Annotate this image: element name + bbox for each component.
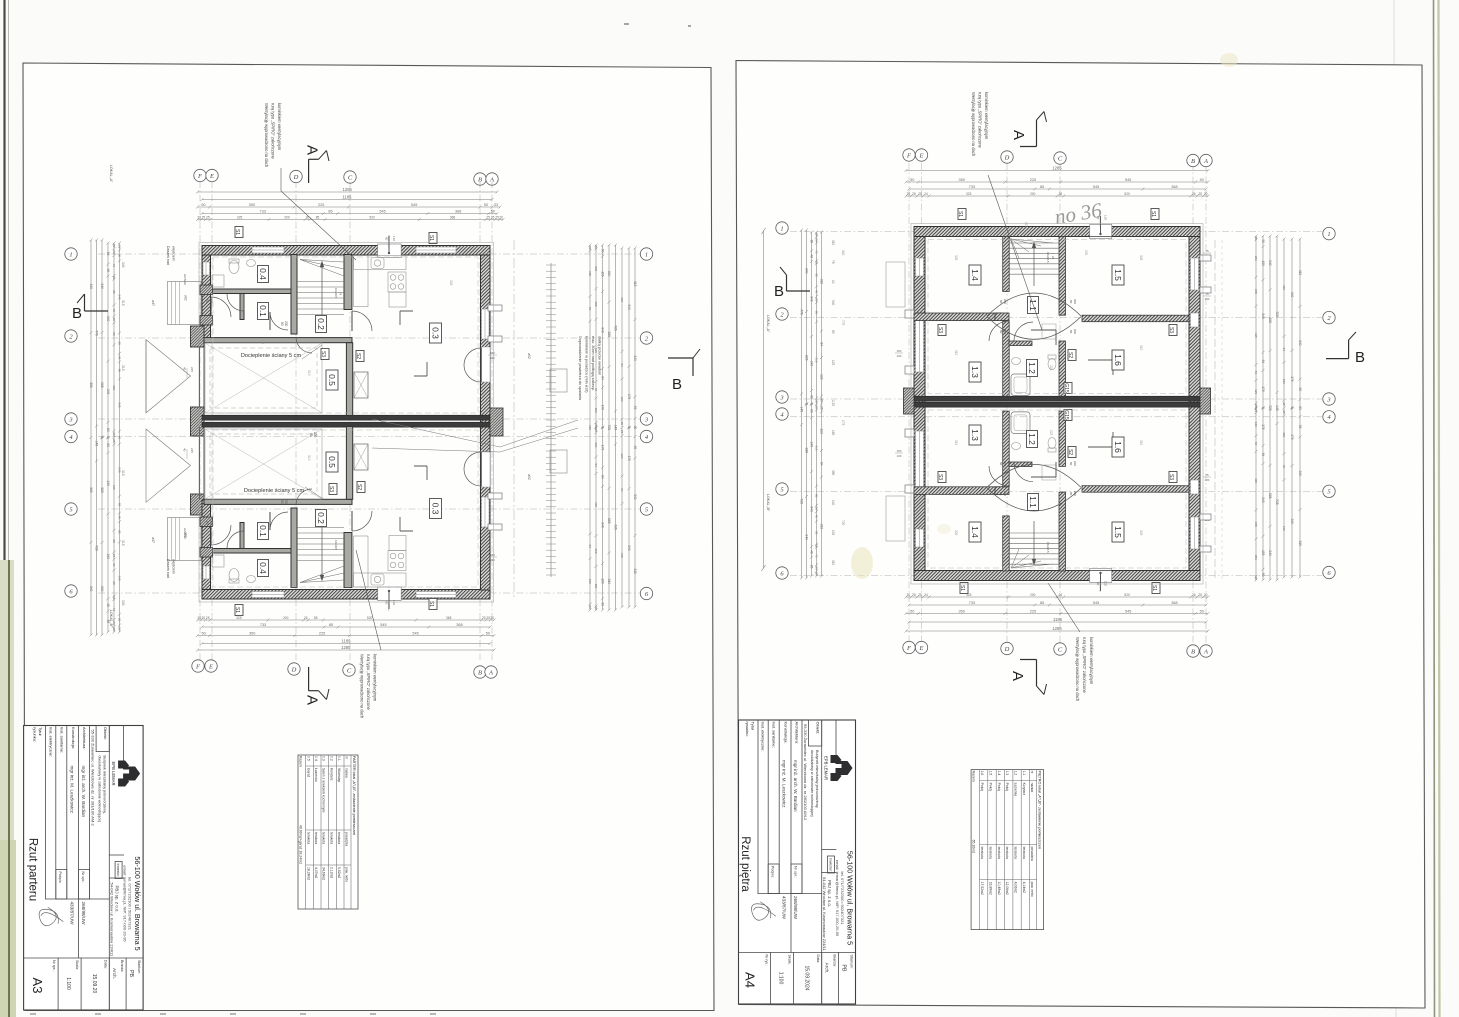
svg-text:85: 85 bbox=[810, 240, 814, 244]
svg-text:pow. netto: pow. netto bbox=[345, 867, 349, 882]
svg-text:733: 733 bbox=[969, 601, 975, 605]
svg-text:340: 340 bbox=[106, 316, 110, 322]
svg-text:25: 25 bbox=[206, 215, 210, 219]
svg-text:340: 340 bbox=[601, 327, 605, 333]
svg-text:315: 315 bbox=[1139, 345, 1143, 351]
svg-text:rysunku:: rysunku: bbox=[33, 727, 38, 742]
svg-text:175: 175 bbox=[627, 456, 631, 462]
svg-text:25: 25 bbox=[912, 593, 916, 597]
svg-text:25: 25 bbox=[815, 405, 819, 409]
svg-text:225: 225 bbox=[190, 448, 194, 453]
svg-text:50: 50 bbox=[118, 618, 122, 622]
svg-text:775: 775 bbox=[95, 330, 99, 336]
svg-text:siatką przeciw owadom: siatką przeciw owadom bbox=[598, 336, 602, 375]
svg-text:S1: S1 bbox=[428, 235, 434, 241]
svg-text:268/98/UW: 268/98/UW bbox=[81, 902, 86, 926]
svg-text:155: 155 bbox=[588, 579, 592, 584]
svg-text:130: 130 bbox=[392, 236, 396, 241]
svg-text:Garaż: Garaż bbox=[306, 768, 310, 778]
svg-text:50: 50 bbox=[484, 203, 488, 207]
svg-text:200: 200 bbox=[1073, 491, 1077, 496]
svg-text:PB: PB bbox=[841, 965, 847, 972]
svg-text:80: 80 bbox=[815, 311, 819, 315]
svg-text:165: 165 bbox=[831, 430, 835, 436]
svg-text:mgr inż. arch. W. Bardian: mgr inż. arch. W. Bardian bbox=[81, 766, 86, 818]
svg-text:130: 130 bbox=[1104, 215, 1108, 220]
svg-text:50: 50 bbox=[201, 203, 205, 207]
svg-text:Daszek nad: Daszek nad bbox=[166, 246, 170, 265]
svg-text:Razem: Razem bbox=[299, 756, 303, 767]
svg-text:80: 80 bbox=[280, 500, 284, 504]
svg-text:725: 725 bbox=[607, 425, 611, 431]
svg-text:Skala:: Skala: bbox=[75, 960, 79, 970]
svg-text:80: 80 bbox=[1069, 330, 1073, 334]
svg-text:24: 24 bbox=[1051, 256, 1055, 260]
svg-text:25: 25 bbox=[620, 422, 624, 426]
svg-text:Wiatrołap: Wiatrołap bbox=[337, 768, 341, 782]
svg-text:1: 1 bbox=[69, 251, 72, 258]
svg-text:433/87/UW: 433/87/UW bbox=[69, 902, 74, 926]
svg-text:kominkiem wentylacyjnym: kominkiem wentylacyjnym bbox=[277, 103, 282, 151]
svg-text:4,14m2: 4,14m2 bbox=[1022, 882, 1026, 893]
svg-text:0.2: 0.2 bbox=[316, 512, 326, 524]
svg-text:315: 315 bbox=[1282, 526, 1286, 531]
svg-text:Konstrukcja:: Konstrukcja: bbox=[71, 727, 76, 749]
svg-text:E: E bbox=[209, 173, 214, 180]
svg-text:50: 50 bbox=[486, 631, 490, 635]
svg-text:terakota: terakota bbox=[1005, 847, 1009, 859]
svg-text:20: 20 bbox=[1204, 192, 1208, 196]
svg-text:26: 26 bbox=[815, 507, 819, 511]
svg-text:385: 385 bbox=[805, 355, 809, 361]
svg-text:1.5: 1.5 bbox=[988, 771, 992, 776]
svg-text:245: 245 bbox=[106, 481, 110, 487]
svg-text:200: 200 bbox=[1030, 192, 1036, 196]
svg-text:1.1: 1.1 bbox=[1028, 496, 1038, 508]
svg-text:540: 540 bbox=[831, 300, 835, 306]
svg-text:26: 26 bbox=[112, 554, 116, 558]
svg-text:95: 95 bbox=[112, 290, 116, 294]
svg-text:315: 315 bbox=[1282, 285, 1286, 290]
svg-text:Razem: Razem bbox=[972, 771, 976, 782]
svg-text:75: 75 bbox=[1205, 473, 1209, 477]
svg-text:50: 50 bbox=[910, 609, 914, 613]
svg-text:20: 20 bbox=[112, 628, 116, 632]
svg-text:B: B bbox=[774, 283, 784, 300]
svg-text:80: 80 bbox=[309, 433, 313, 437]
svg-text:25: 25 bbox=[1198, 192, 1202, 196]
svg-text:Architektura:: Architektura: bbox=[795, 722, 800, 744]
svg-text:200: 200 bbox=[1003, 299, 1007, 304]
svg-text:385: 385 bbox=[89, 487, 93, 493]
svg-text:terakota: terakota bbox=[314, 832, 318, 844]
svg-text:80: 80 bbox=[385, 601, 389, 605]
svg-text:2: 2 bbox=[810, 403, 814, 405]
svg-text:A: A bbox=[1009, 671, 1026, 681]
svg-text:16x18,5: 16x18,5 bbox=[334, 288, 338, 298]
svg-text:20: 20 bbox=[490, 616, 494, 620]
svg-text:1.1: 1.1 bbox=[1022, 771, 1026, 776]
svg-text:Architektura:: Architektura: bbox=[82, 727, 87, 749]
svg-text:105: 105 bbox=[831, 530, 835, 536]
svg-text:145: 145 bbox=[95, 441, 99, 447]
svg-text:S1: S1 bbox=[234, 607, 240, 613]
svg-text:340: 340 bbox=[805, 534, 809, 540]
svg-text:Inst. sanitarne:: Inst. sanitarne: bbox=[772, 722, 777, 748]
svg-text:25: 25 bbox=[202, 616, 206, 620]
svg-text:0.5: 0.5 bbox=[306, 756, 310, 761]
svg-text:Arch.: Arch. bbox=[825, 963, 830, 974]
svg-text:130: 130 bbox=[1104, 581, 1108, 586]
svg-text:24: 24 bbox=[831, 280, 835, 284]
svg-text:1.1: 1.1 bbox=[1028, 299, 1038, 311]
svg-text:733: 733 bbox=[260, 623, 266, 627]
svg-text:200: 200 bbox=[284, 321, 288, 327]
svg-text:225: 225 bbox=[319, 631, 325, 635]
svg-text:Podpis:: Podpis: bbox=[771, 866, 775, 878]
svg-text:20: 20 bbox=[594, 606, 598, 610]
svg-text:340: 340 bbox=[627, 304, 631, 310]
svg-text:25: 25 bbox=[1254, 409, 1258, 413]
svg-text:24: 24 bbox=[339, 292, 343, 296]
svg-text:1.3: 1.3 bbox=[1005, 771, 1009, 776]
svg-text:mgr inż. arch. W. Bardian: mgr inż. arch. W. Bardian bbox=[793, 760, 798, 812]
svg-text:1: 1 bbox=[645, 251, 648, 258]
svg-text:1.6: 1.6 bbox=[980, 771, 984, 776]
svg-text:Wentylację wyprowadzono na dac: Wentylację wyprowadzono na dach bbox=[1075, 637, 1080, 702]
svg-text:245: 245 bbox=[810, 442, 814, 448]
svg-text:kominkiem wentylacyjnym: kominkiem wentylacyjnym bbox=[373, 654, 378, 702]
svg-text:2x15/30: 2x15/30 bbox=[183, 274, 187, 285]
svg-text:80: 80 bbox=[280, 322, 284, 326]
svg-text:25: 25 bbox=[202, 215, 206, 219]
svg-text:wejściem: wejściem bbox=[172, 246, 176, 261]
svg-text:Obiekt:: Obiekt: bbox=[816, 722, 821, 735]
svg-text:200: 200 bbox=[1030, 593, 1036, 597]
svg-text:315: 315 bbox=[815, 358, 819, 363]
svg-text:315: 315 bbox=[954, 350, 958, 356]
svg-text:315: 315 bbox=[831, 560, 835, 566]
svg-text:25: 25 bbox=[486, 215, 490, 219]
svg-text:725: 725 bbox=[614, 524, 618, 530]
svg-text:385: 385 bbox=[831, 470, 835, 476]
svg-text:G15: G15 bbox=[1063, 383, 1069, 393]
svg-text:200: 200 bbox=[283, 616, 289, 620]
svg-text:545: 545 bbox=[380, 623, 386, 627]
svg-text:73: 73 bbox=[815, 250, 819, 254]
svg-text:16,89m2: 16,89m2 bbox=[988, 882, 992, 895]
svg-text:310: 310 bbox=[307, 370, 311, 376]
svg-text:80: 80 bbox=[999, 462, 1003, 466]
svg-text:Stadium:: Stadium: bbox=[137, 960, 141, 974]
svg-text:175: 175 bbox=[1261, 386, 1265, 392]
svg-text:Obiekt:: Obiekt: bbox=[103, 727, 108, 740]
svg-text:4,07m2: 4,07m2 bbox=[314, 867, 318, 878]
svg-text:B: B bbox=[1191, 648, 1195, 655]
svg-text:130: 130 bbox=[897, 354, 902, 358]
svg-text:200: 200 bbox=[313, 432, 317, 438]
svg-text:95: 95 bbox=[118, 530, 122, 534]
svg-text:84: 84 bbox=[620, 488, 624, 492]
svg-text:A: A bbox=[304, 145, 321, 155]
svg-text:80: 80 bbox=[118, 503, 122, 507]
svg-text:17,52m2: 17,52m2 bbox=[980, 882, 984, 895]
svg-text:Inwestor:: Inwestor: bbox=[116, 864, 120, 878]
svg-text:315: 315 bbox=[121, 470, 125, 476]
svg-text:Docieplenie ściany 5 cm: Docieplenie ściany 5 cm bbox=[241, 353, 302, 359]
svg-text:0.4: 0.4 bbox=[258, 562, 268, 574]
svg-text:90: 90 bbox=[205, 299, 209, 303]
svg-text:0.4: 0.4 bbox=[258, 268, 268, 280]
svg-text:25: 25 bbox=[918, 593, 922, 597]
svg-text:1: 1 bbox=[1327, 231, 1330, 238]
svg-text:200: 200 bbox=[1073, 329, 1077, 334]
svg-text:545: 545 bbox=[1093, 601, 1099, 605]
svg-text:2,25: 2,25 bbox=[831, 400, 835, 406]
svg-text:140: 140 bbox=[831, 500, 835, 506]
svg-text:145: 145 bbox=[800, 406, 804, 412]
svg-text:368: 368 bbox=[456, 623, 462, 627]
svg-text:55-330 Żurawiniec ul. Wierzbow: 55-330 Żurawiniec ul. Wierzbowa dz. nr 2… bbox=[91, 730, 96, 827]
svg-text:84: 84 bbox=[1254, 371, 1258, 375]
svg-text:54-042 Wrocław ul. Kosmonautów: 54-042 Wrocław ul. Kosmonautów 224/11 bbox=[110, 883, 115, 957]
svg-text:1: 1 bbox=[780, 225, 783, 232]
svg-text:315: 315 bbox=[1298, 270, 1302, 276]
svg-text:26: 26 bbox=[304, 616, 308, 620]
svg-text:80: 80 bbox=[1069, 462, 1073, 466]
svg-text:315: 315 bbox=[633, 281, 637, 287]
svg-text:520: 520 bbox=[1124, 593, 1130, 597]
svg-text:B: B bbox=[478, 669, 482, 676]
svg-text:84: 84 bbox=[1254, 442, 1258, 446]
svg-text:0.3: 0.3 bbox=[431, 327, 441, 339]
svg-text:Pokój: Pokój bbox=[1005, 783, 1009, 792]
svg-text:84: 84 bbox=[588, 307, 592, 311]
svg-text:1.3: 1.3 bbox=[970, 366, 980, 378]
svg-text:155: 155 bbox=[1261, 550, 1265, 556]
svg-text:80: 80 bbox=[112, 332, 116, 336]
svg-text:25: 25 bbox=[594, 429, 598, 433]
svg-text:LOKAL „A”: LOKAL „A” bbox=[766, 315, 770, 333]
svg-text:56-100 Wołów ul. Browarna 5: 56-100 Wołów ul. Browarna 5 bbox=[846, 851, 855, 945]
svg-text:328: 328 bbox=[1139, 255, 1143, 261]
svg-text:Wentylację wyprowadzono na dac: Wentylację wyprowadzono na dach bbox=[971, 92, 976, 157]
svg-text:kominkiem w posadzce (min ø16): kominkiem w posadzce (min ø16) bbox=[585, 336, 589, 393]
svg-text:D: D bbox=[291, 666, 297, 673]
svg-text:20: 20 bbox=[1254, 236, 1258, 240]
svg-text:545: 545 bbox=[1125, 609, 1131, 613]
svg-text:60: 60 bbox=[810, 395, 814, 399]
svg-text:95: 95 bbox=[633, 446, 637, 450]
svg-text:84: 84 bbox=[594, 464, 598, 468]
svg-text:123: 123 bbox=[1282, 379, 1286, 384]
svg-text:222: 222 bbox=[1024, 222, 1028, 228]
svg-text:385: 385 bbox=[1268, 493, 1272, 499]
svg-text:D: D bbox=[1004, 154, 1010, 161]
svg-text:0.5: 0.5 bbox=[327, 374, 337, 386]
svg-text:Tytuł: Tytuł bbox=[38, 727, 43, 736]
svg-text:mgr inż. M. Leszkowicz: mgr inż. M. Leszkowicz bbox=[69, 766, 74, 814]
svg-text:ø47: ø47 bbox=[151, 300, 155, 306]
svg-text:125: 125 bbox=[831, 360, 835, 366]
svg-text:1.5: 1.5 bbox=[1113, 269, 1123, 281]
svg-text:175: 175 bbox=[627, 394, 631, 400]
svg-text:1:100: 1:100 bbox=[778, 972, 784, 985]
svg-text:15.09.2024: 15.09.2024 bbox=[804, 965, 810, 990]
svg-text:123: 123 bbox=[820, 374, 824, 380]
svg-text:nazwa: nazwa bbox=[1030, 783, 1034, 793]
svg-text:dwulokalowy w zabudowie wolnos: dwulokalowy w zabudowie wolnostojącej bbox=[810, 750, 814, 817]
svg-text:225: 225 bbox=[1030, 178, 1036, 182]
svg-text:rurą typu „SPIRO” zakończone: rurą typu „SPIRO” zakończone bbox=[271, 103, 276, 159]
svg-text:175: 175 bbox=[1290, 434, 1294, 440]
svg-text:123: 123 bbox=[594, 442, 598, 447]
svg-text:48: 48 bbox=[810, 254, 814, 258]
svg-text:78: 78 bbox=[831, 260, 835, 264]
svg-text:1285: 1285 bbox=[343, 187, 353, 192]
svg-text:Inst. elektryczne:: Inst. elektryczne: bbox=[761, 722, 766, 752]
svg-text:13: 13 bbox=[112, 596, 116, 600]
svg-text:340: 340 bbox=[607, 579, 611, 585]
svg-text:340: 340 bbox=[106, 554, 110, 560]
svg-text:25: 25 bbox=[1282, 403, 1286, 407]
svg-text:315: 315 bbox=[815, 446, 819, 451]
svg-text:150: 150 bbox=[897, 349, 902, 353]
svg-text:340: 340 bbox=[100, 283, 104, 289]
svg-text:85: 85 bbox=[329, 623, 333, 627]
svg-text:B: B bbox=[672, 376, 682, 393]
svg-text:50: 50 bbox=[1261, 240, 1265, 244]
svg-text:24: 24 bbox=[924, 593, 928, 597]
svg-text:LOKAL „B”: LOKAL „B” bbox=[109, 610, 113, 628]
svg-text:50: 50 bbox=[201, 631, 205, 635]
svg-text:5,52m2: 5,52m2 bbox=[337, 867, 341, 878]
svg-text:175: 175 bbox=[601, 405, 605, 411]
svg-text:123: 123 bbox=[1254, 389, 1258, 394]
svg-text:20: 20 bbox=[1204, 593, 1208, 597]
svg-text:385: 385 bbox=[805, 448, 809, 454]
svg-text:2: 2 bbox=[1261, 407, 1265, 409]
svg-text:1.3: 1.3 bbox=[970, 429, 980, 441]
svg-text:340: 340 bbox=[1298, 471, 1302, 477]
svg-text:80: 80 bbox=[1069, 300, 1073, 304]
svg-text:24: 24 bbox=[924, 192, 928, 196]
svg-text:S1: S1 bbox=[1150, 211, 1156, 217]
svg-text:2: 2 bbox=[1290, 407, 1294, 409]
svg-text:terakota: terakota bbox=[997, 847, 1001, 859]
svg-text:223: 223 bbox=[1049, 365, 1053, 371]
svg-text:340: 340 bbox=[1261, 497, 1265, 503]
svg-text:56-100 Wołów ul. Browarna 5: 56-100 Wołów ul. Browarna 5 bbox=[133, 856, 142, 950]
svg-text:1285: 1285 bbox=[341, 645, 351, 650]
svg-text:325: 325 bbox=[966, 192, 972, 196]
svg-text:PARTER lokal „A”/„B”- zestawie: PARTER lokal „A”/„B”- zestawienie pomies… bbox=[352, 756, 356, 835]
svg-text:315: 315 bbox=[121, 540, 125, 546]
svg-text:200: 200 bbox=[209, 298, 213, 304]
svg-text:0.2: 0.2 bbox=[316, 318, 326, 330]
svg-text:310: 310 bbox=[307, 455, 311, 461]
svg-text:90: 90 bbox=[205, 521, 209, 525]
svg-text:1.4: 1.4 bbox=[970, 269, 980, 281]
svg-text:340: 340 bbox=[1290, 292, 1294, 298]
svg-text:C: C bbox=[1058, 155, 1063, 162]
svg-text:Nr rys.:: Nr rys.: bbox=[765, 955, 769, 967]
svg-text:73: 73 bbox=[815, 554, 819, 558]
svg-text:545: 545 bbox=[379, 209, 385, 213]
svg-text:385: 385 bbox=[607, 332, 611, 338]
svg-text:50: 50 bbox=[118, 254, 122, 258]
svg-text:26: 26 bbox=[815, 238, 819, 242]
svg-text:25: 25 bbox=[112, 439, 116, 443]
svg-text:50: 50 bbox=[601, 249, 605, 253]
svg-text:123: 123 bbox=[1254, 422, 1258, 427]
svg-text:315: 315 bbox=[820, 279, 824, 285]
svg-text:S3: S3 bbox=[320, 351, 326, 357]
svg-text:223: 223 bbox=[1049, 430, 1053, 436]
svg-text:385: 385 bbox=[1268, 317, 1272, 323]
svg-text:0.3: 0.3 bbox=[322, 756, 326, 761]
svg-text:Rzut piętra: Rzut piętra bbox=[739, 836, 751, 892]
svg-text:80: 80 bbox=[999, 330, 1003, 334]
svg-text:200: 200 bbox=[284, 499, 288, 505]
svg-text:350: 350 bbox=[249, 631, 255, 635]
svg-text:kominkiem wentylacyjnym: kominkiem wentylacyjnym bbox=[1089, 637, 1094, 685]
svg-text:26: 26 bbox=[815, 566, 819, 570]
svg-text:email: lemar@firma.pl, NIP: 91: email: lemar@firma.pl, NIP: 917-000-20-9… bbox=[835, 860, 840, 937]
svg-text:20: 20 bbox=[907, 192, 911, 196]
svg-text:A: A bbox=[1203, 648, 1208, 655]
svg-text:245: 245 bbox=[118, 403, 122, 408]
svg-text:1.2: 1.2 bbox=[1014, 771, 1018, 776]
svg-text:B: B bbox=[72, 305, 82, 322]
svg-text:340: 340 bbox=[1290, 519, 1294, 525]
svg-text:65,16m2: 65,16m2 bbox=[972, 840, 976, 854]
svg-text:85: 85 bbox=[316, 215, 320, 219]
svg-text:2: 2 bbox=[627, 427, 631, 429]
svg-text:40: 40 bbox=[815, 290, 819, 294]
svg-text:328: 328 bbox=[954, 255, 958, 261]
svg-text:340: 340 bbox=[805, 268, 809, 274]
svg-text:posadzka: posadzka bbox=[345, 832, 349, 846]
svg-text:26: 26 bbox=[112, 318, 116, 322]
svg-text:25: 25 bbox=[815, 399, 819, 403]
svg-text:520: 520 bbox=[1124, 192, 1130, 196]
svg-text:155: 155 bbox=[594, 301, 598, 306]
svg-text:235: 235 bbox=[1084, 250, 1088, 256]
svg-text:C: C bbox=[1058, 646, 1063, 653]
svg-text:1.2: 1.2 bbox=[1027, 362, 1037, 374]
svg-text:368: 368 bbox=[446, 616, 452, 620]
svg-text:Pokój: Pokój bbox=[988, 783, 992, 792]
svg-text:A4: A4 bbox=[743, 972, 758, 988]
svg-text:20: 20 bbox=[594, 245, 598, 249]
svg-text:84: 84 bbox=[620, 364, 624, 368]
svg-text:80: 80 bbox=[1069, 492, 1073, 496]
svg-text:733: 733 bbox=[260, 209, 266, 213]
svg-text:20: 20 bbox=[907, 593, 911, 597]
svg-text:340: 340 bbox=[810, 506, 814, 512]
svg-text:50: 50 bbox=[1261, 573, 1265, 577]
svg-text:130: 130 bbox=[897, 454, 902, 458]
svg-text:60: 60 bbox=[118, 436, 122, 440]
svg-text:25: 25 bbox=[482, 616, 486, 620]
svg-text:0.2: 0.2 bbox=[329, 756, 333, 761]
svg-text:max. 30cm nad podłogą zabezp.: max. 30cm nad podłogą zabezp. bbox=[591, 336, 595, 391]
svg-text:85: 85 bbox=[810, 565, 814, 569]
svg-text:85: 85 bbox=[106, 252, 110, 256]
svg-text:268/98/UW: 268/98/UW bbox=[793, 896, 798, 920]
svg-text:123: 123 bbox=[594, 408, 598, 413]
